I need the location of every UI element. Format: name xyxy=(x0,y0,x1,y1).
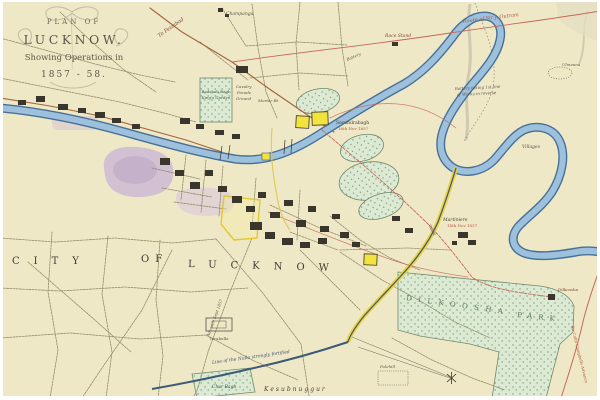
label-kesubnuggur: Kesubnuggur xyxy=(263,386,327,393)
svg-text:OF: OF xyxy=(141,254,168,265)
banks-house xyxy=(364,254,377,265)
label-cavalry-parade: Cavalry xyxy=(236,84,252,89)
label-race-stand: Race Stand xyxy=(384,33,411,39)
dilkoosha-house-building xyxy=(548,294,555,300)
martiniere-building xyxy=(458,232,468,238)
lucknow-map: To Feizabad Champanga Race Stand Route o… xyxy=(0,0,600,400)
label-villages: Villages xyxy=(522,144,541,150)
secundra-bagh-building xyxy=(312,112,328,126)
label-martiniere-date: 14th Nov 1857 xyxy=(447,223,478,228)
label-city-of-lucknow: CITY xyxy=(12,256,93,267)
label-secundra-date: 16th Nov 1857 xyxy=(338,126,369,131)
title-lucknow: LUCKNOW. xyxy=(24,32,125,47)
label-dilkoosha-house: Dilkoosha xyxy=(558,287,579,292)
label-champanga: Champanga xyxy=(226,11,254,17)
svg-text:Parade: Parade xyxy=(236,90,252,95)
label-terahulla: Terahulla xyxy=(209,336,229,341)
label-polehill: Polehill xyxy=(379,364,396,369)
label-mortar-battery: Mortar Bt xyxy=(257,98,279,103)
map-page: To Feizabad Champanga Race Stand Route o… xyxy=(0,0,600,400)
label-char-bagh: Char Bagh xyxy=(212,384,236,390)
shah-nujeef-building xyxy=(296,116,310,129)
svg-text:King's Garden: King's Garden xyxy=(201,95,231,100)
title-plan-of: PLAN OF xyxy=(47,18,101,26)
title-years: 1857 - 58. xyxy=(41,70,107,80)
label-ulmeana: Ulmeana xyxy=(562,62,581,67)
title-subtitle: Showing Operations in xyxy=(25,53,124,63)
badshah-bagh-garden xyxy=(200,78,232,122)
label-badshah-bagh: Badshah Bagh xyxy=(201,89,231,94)
svg-text:Ground: Ground xyxy=(236,96,252,101)
race-stand-building xyxy=(392,42,398,46)
